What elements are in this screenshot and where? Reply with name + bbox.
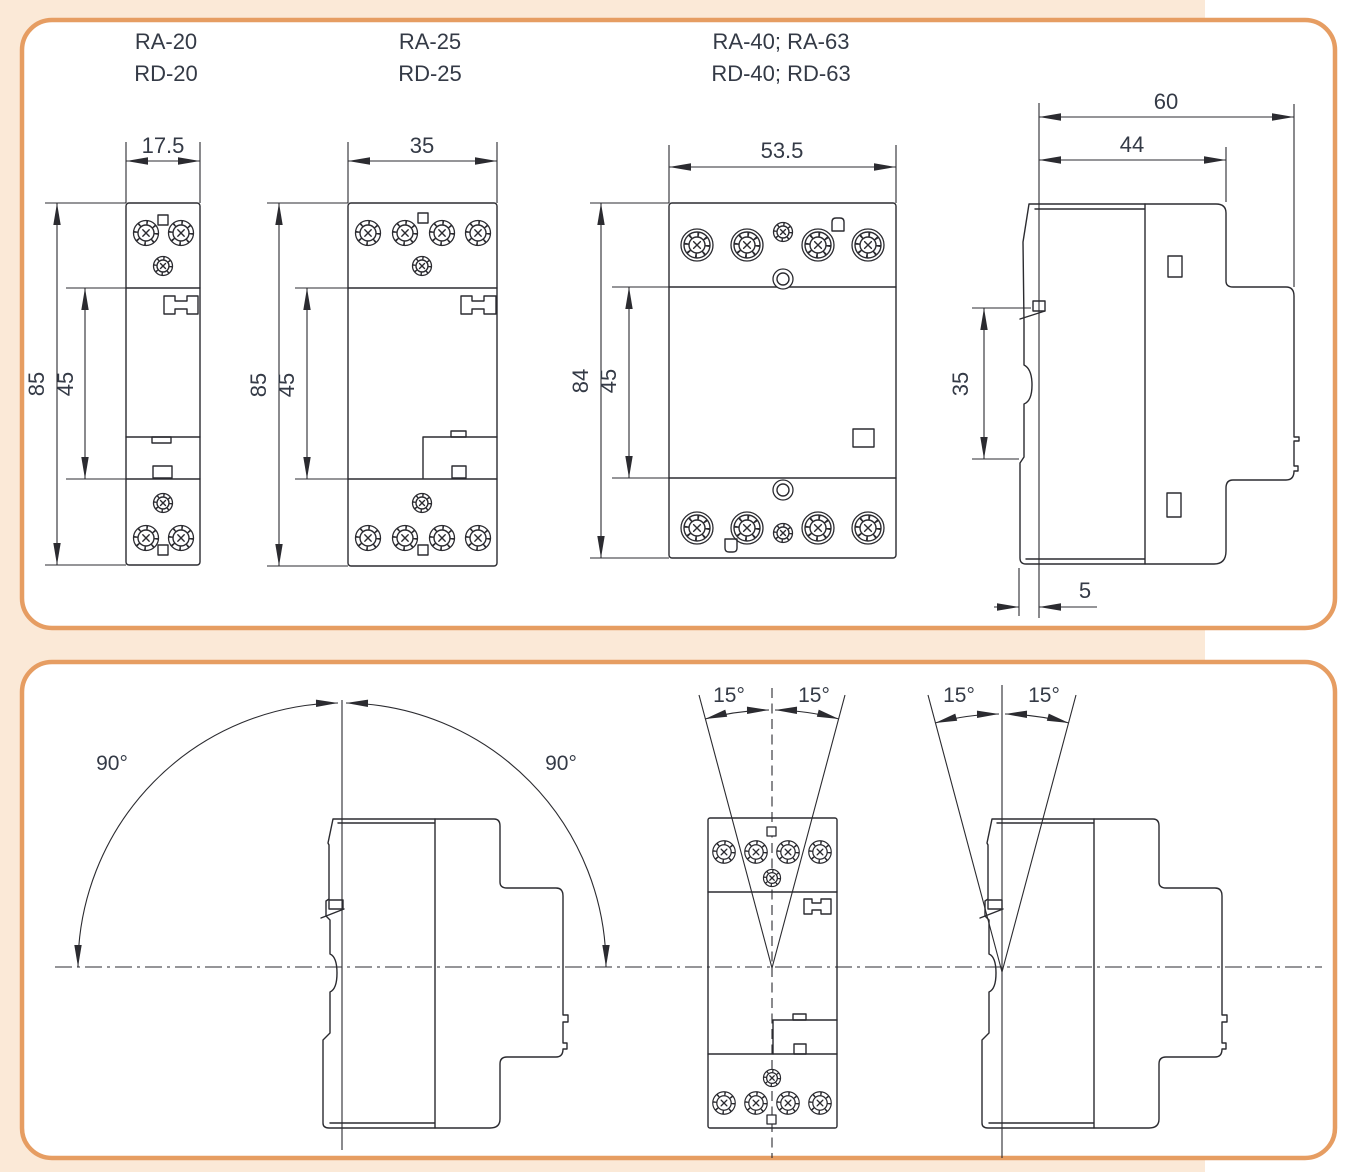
model-label-3a: RA-40; RA-63 xyxy=(713,29,850,54)
dim-value: 45 xyxy=(274,373,299,397)
technical-drawing: RA-20 RD-20 RA-25 RD-25 RA-40; RA-63 RD-… xyxy=(0,0,1357,1172)
angle-label-right: 15° xyxy=(798,684,830,707)
dim-value: 17.5 xyxy=(142,133,185,158)
dim-value: 60 xyxy=(1154,89,1178,114)
top-panel xyxy=(22,20,1335,628)
dim-value: 45 xyxy=(596,369,621,393)
dim-value: 35 xyxy=(410,133,434,158)
bottom-panel xyxy=(22,662,1335,1158)
model-label-3b: RD-40; RD-63 xyxy=(711,61,850,86)
dim-value: 44 xyxy=(1120,132,1144,157)
model-label-1a: RA-20 xyxy=(135,29,197,54)
model-label-2b: RD-25 xyxy=(398,61,462,86)
model-label-2a: RA-25 xyxy=(399,29,461,54)
angle-label-left: 15° xyxy=(713,684,745,707)
dimension-drawing-page: RA-20 RD-20 RA-25 RD-25 RA-40; RA-63 RD-… xyxy=(0,0,1357,1172)
dim-value: 45 xyxy=(53,372,78,396)
angle-label-left: 90° xyxy=(96,752,128,775)
model-label-1b: RD-20 xyxy=(134,61,198,86)
dim-value: 85 xyxy=(246,373,271,397)
angle-label-right: 15° xyxy=(1028,684,1060,707)
dim-value: 85 xyxy=(24,372,49,396)
dim-value: 53.5 xyxy=(761,138,804,163)
dim-value: 35 xyxy=(948,372,973,396)
angle-label-right: 90° xyxy=(545,752,577,775)
dim-value: 84 xyxy=(568,369,593,393)
angle-label-left: 15° xyxy=(943,684,975,707)
dim-value: 5 xyxy=(1079,578,1091,603)
